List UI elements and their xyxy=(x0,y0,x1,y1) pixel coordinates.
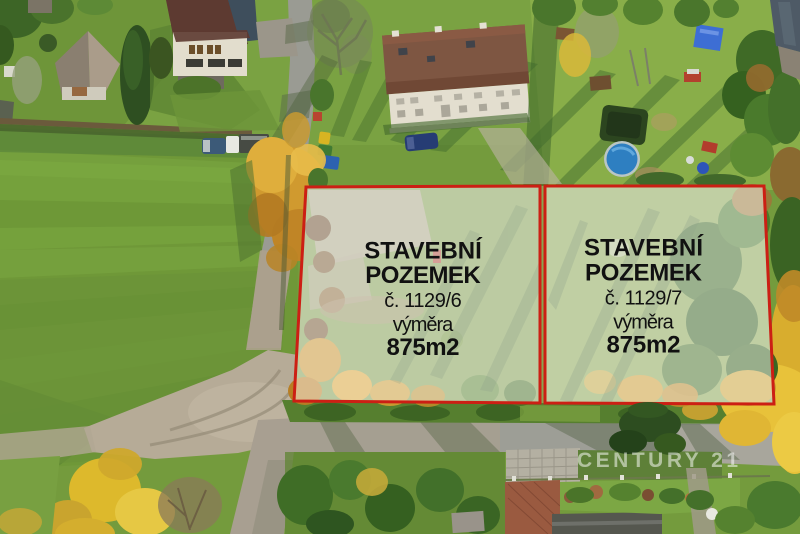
svg-text:č. 1129/7: č. 1129/7 xyxy=(605,288,683,310)
svg-text:výměra: výměra xyxy=(393,314,454,336)
svg-text:STAVEBNÍ: STAVEBNÍ xyxy=(584,234,704,262)
svg-text:POZEMEK: POZEMEK xyxy=(585,260,703,287)
svg-text:výměra: výměra xyxy=(613,312,674,334)
svg-text:STAVEBNÍ: STAVEBNÍ xyxy=(364,237,483,265)
svg-text:CENTURY 21: CENTURY 21 xyxy=(577,449,742,472)
svg-text:875m2: 875m2 xyxy=(387,334,460,361)
svg-text:875m2: 875m2 xyxy=(607,332,681,359)
svg-text:POZEMEK: POZEMEK xyxy=(365,262,481,289)
svg-text:č. 1129/6: č. 1129/6 xyxy=(384,290,462,312)
